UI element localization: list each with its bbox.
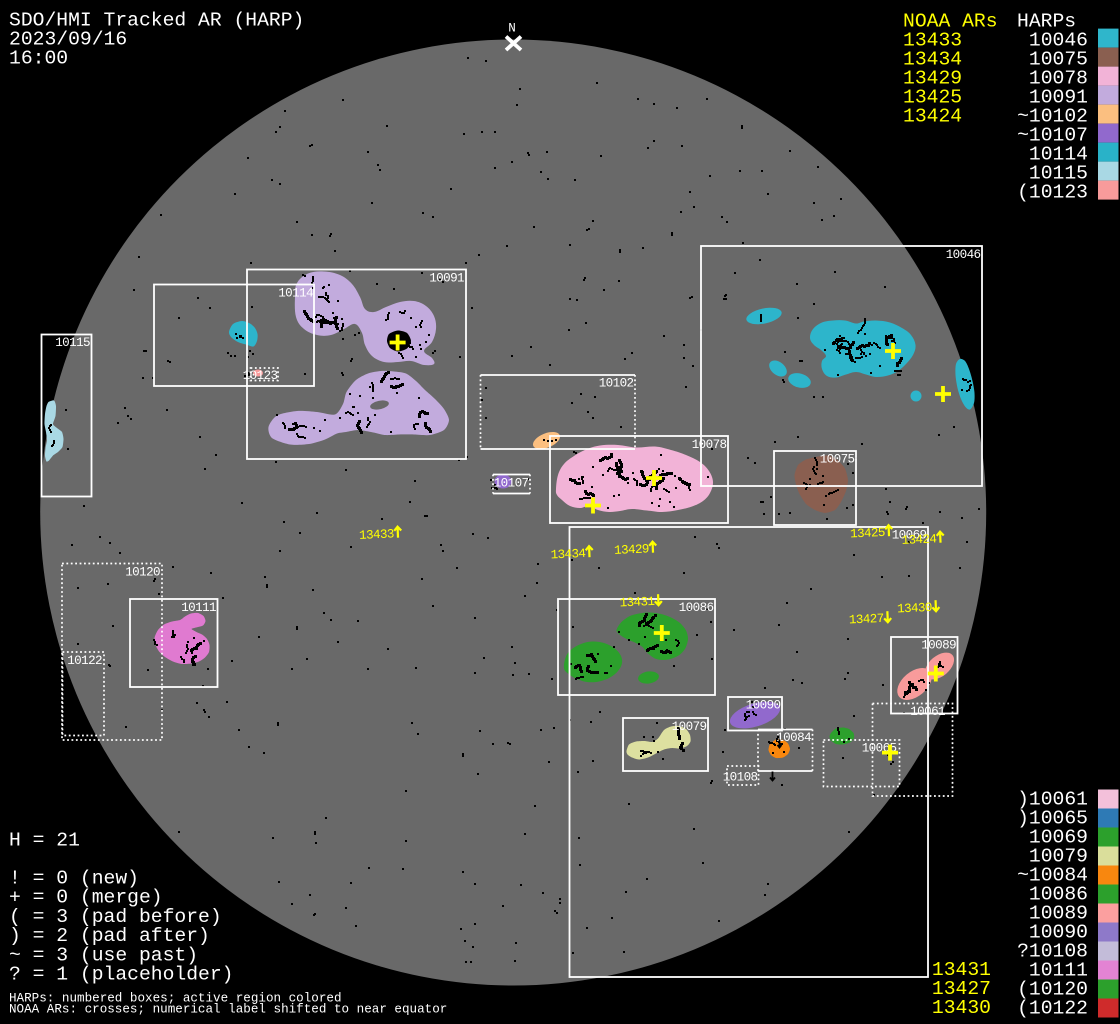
svg-text:10114: 10114 bbox=[278, 287, 313, 301]
svg-text:NOAA ARs: crosses; numerical l: NOAA ARs: crosses; numerical label shift… bbox=[9, 1003, 447, 1017]
svg-text:10108: 10108 bbox=[723, 771, 758, 785]
svg-text:10090: 10090 bbox=[746, 699, 781, 713]
svg-text:13427: 13427 bbox=[849, 612, 884, 628]
svg-text:10084: 10084 bbox=[776, 731, 811, 745]
svg-text:10122: 10122 bbox=[67, 654, 102, 668]
svg-text:(10123: (10123 bbox=[1017, 182, 1088, 204]
svg-text:16:00: 16:00 bbox=[9, 48, 68, 70]
svg-text:10061: 10061 bbox=[910, 705, 945, 719]
svg-text:10075: 10075 bbox=[820, 453, 855, 467]
svg-text:10078: 10078 bbox=[692, 438, 727, 452]
svg-text:10107: 10107 bbox=[494, 477, 529, 491]
svg-text:? = 1 (placeholder): ? = 1 (placeholder) bbox=[9, 964, 233, 986]
svg-text:10046: 10046 bbox=[946, 248, 981, 262]
svg-text:13424: 13424 bbox=[903, 106, 962, 128]
svg-text:13430: 13430 bbox=[932, 997, 991, 1019]
svg-text:13431: 13431 bbox=[619, 595, 654, 611]
svg-text:13433: 13433 bbox=[359, 527, 394, 543]
svg-text:10102: 10102 bbox=[599, 377, 634, 391]
svg-text:13434: 13434 bbox=[550, 547, 585, 563]
svg-text:13425: 13425 bbox=[850, 526, 885, 542]
svg-text:10115: 10115 bbox=[55, 336, 90, 350]
svg-text:13430: 13430 bbox=[897, 601, 932, 617]
svg-text:N: N bbox=[508, 22, 516, 36]
svg-text:10123: 10123 bbox=[243, 369, 278, 383]
svg-text:13429: 13429 bbox=[614, 542, 649, 558]
svg-text:H = 21: H = 21 bbox=[9, 830, 80, 852]
svg-text:10089: 10089 bbox=[921, 639, 956, 653]
svg-text:10120: 10120 bbox=[125, 566, 160, 580]
svg-text:10079: 10079 bbox=[672, 720, 707, 734]
svg-text:(10122: (10122 bbox=[1017, 998, 1088, 1020]
svg-text:10086: 10086 bbox=[679, 601, 714, 615]
svg-text:13424: 13424 bbox=[901, 532, 936, 548]
svg-text:10111: 10111 bbox=[181, 601, 216, 615]
svg-text:10091: 10091 bbox=[429, 272, 464, 286]
